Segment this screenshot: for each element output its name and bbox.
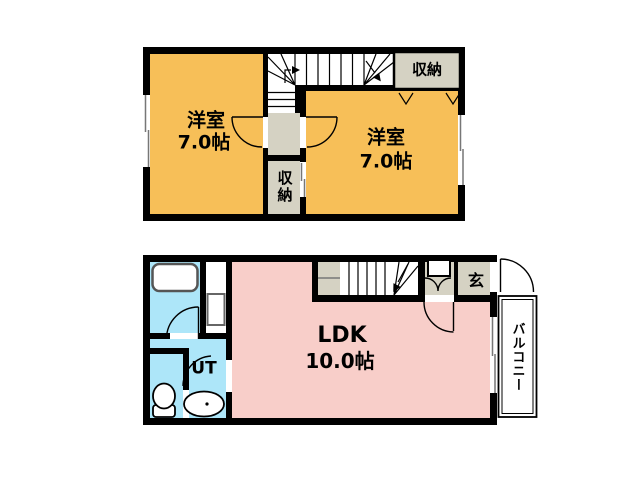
utility-label: UT bbox=[191, 361, 216, 378]
floor2-window-right bbox=[458, 115, 465, 185]
room-right-name: 洋室 bbox=[367, 129, 405, 148]
washer-space bbox=[208, 294, 225, 325]
floor1-window-right bbox=[490, 317, 497, 393]
closet-top-label: 収納 bbox=[412, 63, 442, 78]
room-right-size: 7.0帖 bbox=[360, 153, 413, 172]
entrance-label: 玄 bbox=[468, 273, 484, 289]
bathtub bbox=[153, 264, 198, 291]
floorplan: 洋室 7.0帖 洋室 7.0帖 収納 収納 LDK 10.0帖 玄 UT バルコ… bbox=[0, 0, 640, 480]
front-door bbox=[490, 259, 534, 292]
floorplan-drawing bbox=[0, 0, 640, 480]
closet-mid-label: 収納 bbox=[277, 170, 292, 204]
doorway-gap-left bbox=[263, 117, 268, 148]
room-left-name: 洋室 bbox=[187, 112, 225, 131]
doorway-gap-right bbox=[300, 117, 306, 148]
floor2-window-left bbox=[143, 95, 150, 167]
ldk-size: 10.0帖 bbox=[305, 351, 374, 371]
ldk-name: LDK bbox=[317, 325, 366, 347]
utility-doorway bbox=[226, 360, 232, 392]
toilet-wall-top bbox=[143, 348, 185, 354]
balcony-label: バルコニー bbox=[511, 322, 524, 392]
entrance-step-wall bbox=[454, 262, 458, 302]
floor1-stairs bbox=[312, 262, 425, 302]
sink bbox=[184, 392, 224, 417]
room-left-size: 7.0帖 bbox=[178, 134, 231, 153]
bathroom-doorway bbox=[170, 333, 198, 339]
floor2-stair-landing bbox=[268, 113, 300, 155]
entrance-doorway bbox=[425, 295, 454, 302]
toilet bbox=[153, 384, 175, 418]
shoe-cabinet bbox=[428, 260, 450, 276]
floor1-entrance bbox=[425, 260, 497, 302]
